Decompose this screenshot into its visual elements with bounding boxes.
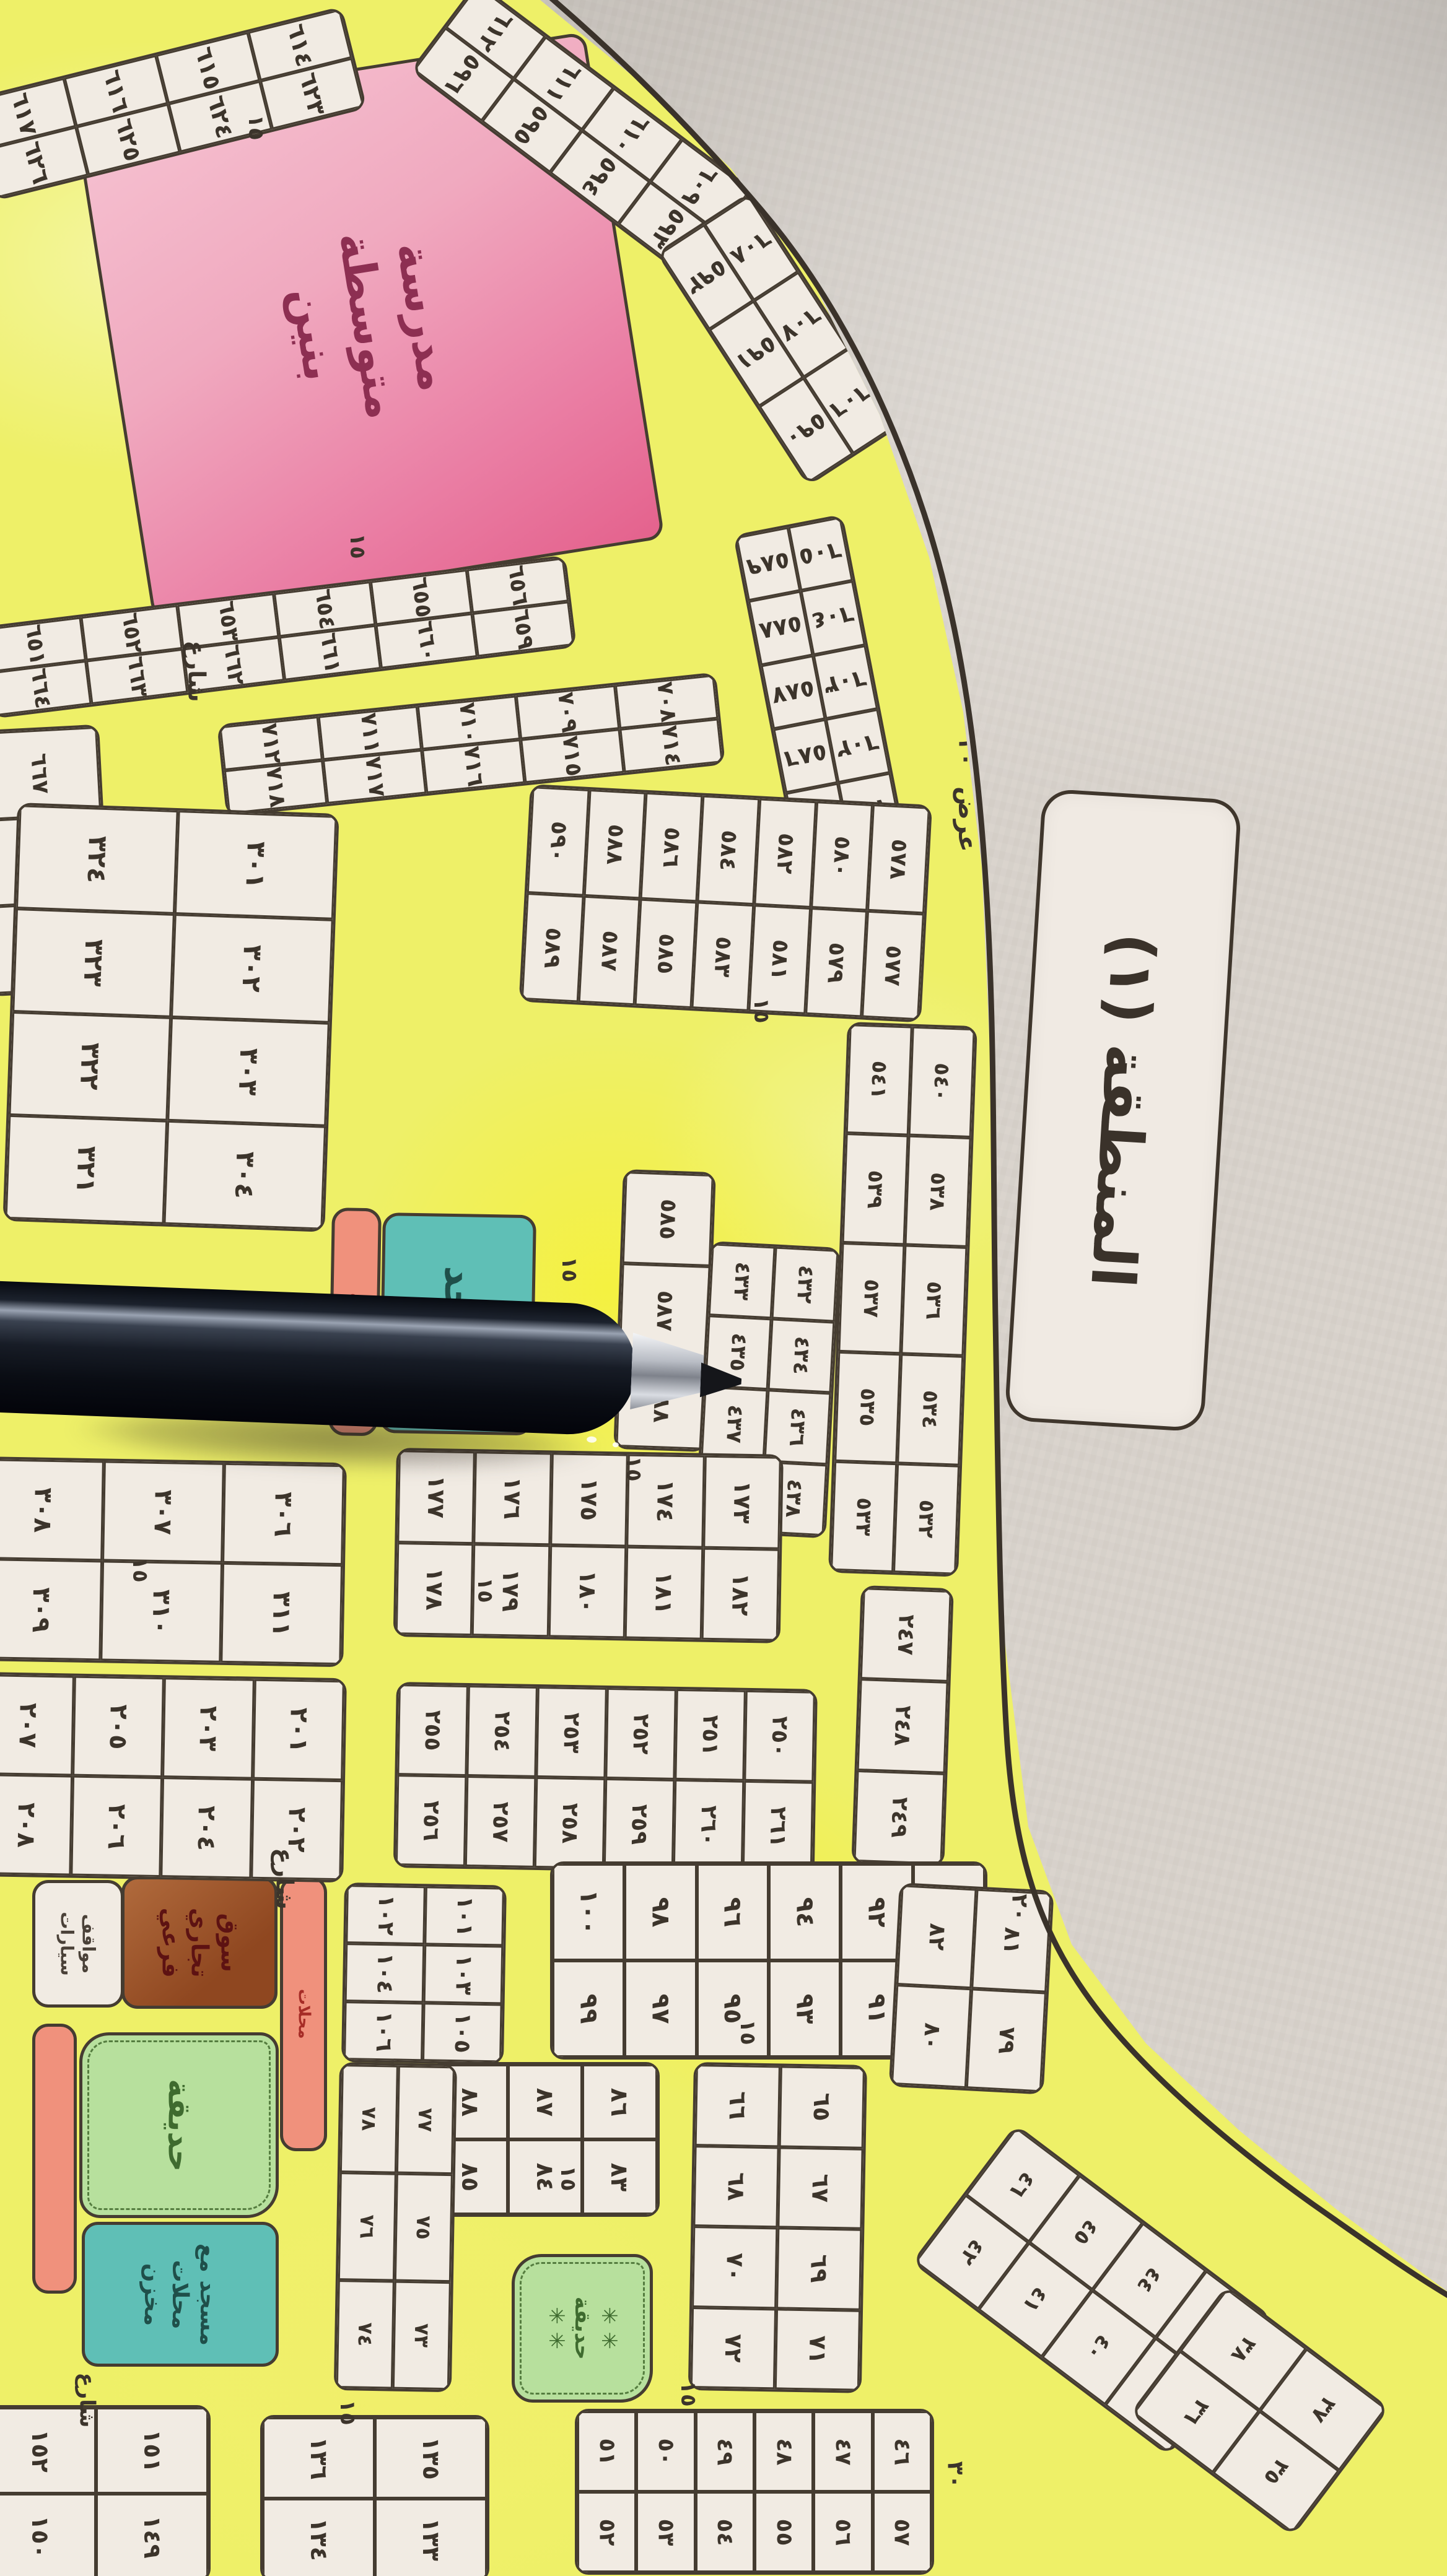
plot-cell: ٧١٧ (323, 750, 426, 804)
plot-cell: ٧٦ (338, 2172, 396, 2281)
street-label: ١٥ (735, 2019, 760, 2045)
plot-cell: ٥٨٩ (522, 893, 584, 1003)
plot-cell: ٧١ (775, 2308, 860, 2391)
plot-cell: ٤٦ (873, 2411, 932, 2492)
shops-strip-3-area (32, 2024, 77, 2294)
market-area: سوقتجاريفرعي (121, 1876, 278, 2009)
street-label: شارع (183, 640, 211, 702)
plot-cell: ١٤٩ (96, 2494, 208, 2576)
plot-cell: ٦٧ (777, 2147, 863, 2229)
street-label: ١٥ (556, 2165, 580, 2191)
plot-cell: ٥٨٧ (578, 896, 640, 1006)
plot-cell: ٢٠٤ (160, 1777, 252, 1879)
parking-area: مواقفسيارات (32, 1880, 124, 2008)
plot-cell: ٥٨٥ (635, 899, 697, 1009)
plot-block-block-65-72: ٦٦٦٥٦٨٦٧٧٠٦٩٧٢٧١ (688, 2062, 867, 2393)
plot-cell: ٢٥٥ (397, 1684, 468, 1776)
plot-block-col-100s: ١٠٢١٠١١٠٤١٠٣١٠٦١٠٥ (341, 1882, 507, 2065)
street-label: متر (912, 353, 940, 394)
plot-cell: ٥٥ (754, 2492, 813, 2572)
parking-label: مواقفسيارات (56, 1912, 100, 1975)
street-label: ١٥ (345, 533, 370, 559)
plot-cell: ٥٨٦ (640, 793, 703, 902)
plot-cell: ١٨٢ (701, 1547, 779, 1641)
plot-block-block-150s: ١٥٢١٥١١٥٠١٤٩ (0, 2405, 211, 2576)
street-label: ١٥ (676, 2381, 701, 2407)
street-label: ٢٠ (953, 739, 979, 767)
plot-cell: ١٨١ (625, 1546, 703, 1640)
market-label: سوقتجاريفرعي (155, 1908, 244, 1978)
plot-cell: ٢٥١ (675, 1689, 746, 1781)
plot-cell: ١٥١ (96, 2408, 208, 2494)
plot-cell: ٣٢٤ (16, 805, 178, 914)
shops-strip-2-label: محلات (294, 1989, 314, 2039)
plot-cell: ٢٥٤ (466, 1686, 538, 1777)
plot-cell: ٥٤ (696, 2492, 754, 2572)
plot-cell: ٢٥٣ (536, 1687, 607, 1778)
pen-nib (700, 1362, 742, 1398)
street-label: ١٥ (473, 1577, 497, 1603)
plot-cell: ٣١٠ (100, 1560, 222, 1662)
street-label: ١٥ (749, 998, 774, 1024)
plot-cell: ٥٨٨ (584, 790, 646, 899)
plot-block-block-40s-50s: ٥١٥٠٤٩٤٨٤٧٤٦٥٢٥٣٥٤٥٥٥٦٥٧ (575, 2409, 934, 2575)
mosque-2-label: مسجد معمحلاتمخزن (138, 2243, 222, 2345)
plot-cell: ٦٩ (776, 2227, 862, 2310)
street-label: ٣٠ (942, 2461, 968, 2489)
mosque-2-area: مسجد معمحلاتمخزن (82, 2222, 279, 2367)
zone-title: المنطقة (١) (1078, 931, 1169, 1290)
plot-cell: ٥٤٠ (909, 1027, 975, 1138)
plot-block-col-240s: ٢٤٧٢٤٨٢٤٩ (851, 1585, 954, 1867)
plot-cell: ٧٨ (340, 2065, 398, 2173)
plot-cell: ٣٢٣ (12, 908, 175, 1017)
plot-cell: ٥٧ (873, 2492, 932, 2572)
plot-cell: ١٥٠ (0, 2494, 96, 2576)
plot-cell: ٢٤٧ (860, 1588, 951, 1682)
plot-cell: ١٣٤ (263, 2499, 375, 2576)
plot-cell: ٦٥ (779, 2066, 865, 2148)
plot-cell: ٥٨٤ (697, 796, 760, 905)
plot-cell: ٢٠٦ (71, 1776, 162, 1878)
plot-cell: ٥٨٢ (754, 798, 816, 908)
plot-block-block-300s: ٣٢٤٣٠١٣٢٣٣٠٢٣٢٢٣٠٣٣٢١٣٠٤ (2, 803, 339, 1232)
pen-body (0, 1280, 639, 1437)
plot-block-arc-b: ٦٠٨٦٠٧٦٠٦٥٩٢٥٩١٥٩٠ (656, 192, 901, 486)
plot-cell: ٧٥ (395, 2173, 453, 2282)
plot-cell: ٦٦٤ (0, 661, 92, 716)
street-label: ٢٠ (1020, 1764, 1046, 1791)
street-label: ٢٠ (1007, 1894, 1032, 1921)
plot-cell: ٢٠١ (253, 1679, 344, 1781)
school-label: مدرسةمتوسطةبنين (272, 219, 466, 431)
plot-cell: ٦٦ (695, 2065, 780, 2147)
plot-cell: ٢٦١ (743, 1781, 814, 1873)
plot-cell: ٥٣٤ (897, 1354, 963, 1466)
plot-cell: ٣٠١ (175, 811, 337, 920)
plot-cell: ٢٥٩ (604, 1778, 675, 1870)
plot-cell: ٢٠٨ (0, 1774, 72, 1876)
plot-cell: ٥٣٥ (834, 1352, 901, 1463)
plot-cell: ١٣٦ (263, 2417, 375, 2499)
plot-block-band2-mid: ٢٥٥٢٥٤٢٥٣٢٥٢٢٥١٢٥٠٢٥٦٢٥٧٢٥٨٢٥٩٢٦٠٢٦١ (393, 1682, 818, 1875)
plot-cell: ٥٩٠ (527, 786, 590, 896)
plot-cell: ٢٠٣ (162, 1677, 254, 1779)
plot-block-block-570s: ٥٩٠٥٨٨٥٨٦٥٨٤٥٨٢٥٨٠٥٧٨٥٨٩٥٨٧٥٨٥٥٨٣٥٨١٥٧٩٥… (519, 784, 933, 1023)
plot-cell: ٨٦ (582, 2065, 657, 2139)
plot-cell: ١٠٠ (553, 1864, 624, 1960)
plot-block-block-530s: ٥٤١٥٤٠٥٣٩٥٣٨٥٣٧٥٣٦٥٣٥٥٣٤٥٣٣٥٣٢ (828, 1022, 977, 1577)
plot-cell: ٢٥٧ (465, 1776, 536, 1868)
plot-cell: ٧٢ (691, 2307, 776, 2390)
plot-cell: ١٠٢ (346, 1885, 426, 1944)
plot-cell: ٧١٦ (422, 739, 525, 793)
plot-cell: ٢٥٢ (605, 1688, 676, 1780)
plot-cell: ٥٠ (636, 2411, 695, 2492)
plot-block-col-73-78: ٧٨٧٧٧٦٧٥٧٤٧٣ (334, 2062, 457, 2392)
plot-cell: ٥٣ (636, 2492, 695, 2572)
street-label: ١٥ (335, 2400, 360, 2426)
park-2-area: ✳ ✳حديقة✳ ✳ (512, 2254, 653, 2403)
plot-cell: ١٠٦ (344, 2001, 424, 2061)
plot-cell: ٥٧٩ (805, 908, 868, 1017)
plot-cell: ٤٨ (754, 2411, 813, 2492)
plot-cell: ٣٠٢ (171, 914, 333, 1023)
street-label: ١٥ (243, 115, 268, 141)
plot-cell: ٥٣٣ (831, 1461, 897, 1572)
plot-cell: ٢٠٥ (72, 1676, 164, 1778)
street-label: شارع (271, 1848, 299, 1909)
plot-cell: ٨٧ (508, 2065, 583, 2139)
plot-block-block-80s: ٨٨٨٧٨٦٨٥٨٤٨٣ (431, 2062, 660, 2217)
plot-cell: ١٨٠ (549, 1545, 627, 1638)
plot-cell: ٥٣٩ (842, 1133, 909, 1245)
plot-cell: ٥٣٨ (904, 1136, 971, 1247)
plot-cell: ٥٧٨ (867, 804, 930, 914)
plot-cell: ٨٠ (891, 1985, 971, 2088)
plot-cell: ٢٥٦ (396, 1775, 467, 1866)
plot-cell: ٤٧ (813, 2411, 872, 2492)
plot-cell: ١٠٣ (424, 1944, 504, 2004)
plot-cell: ٥٨٣ (692, 902, 754, 1011)
street-label: عرض (1032, 1666, 1060, 1731)
street-label: عرض (953, 786, 981, 852)
street-label: ١٥ (557, 1256, 582, 1282)
plot-cell: ٩٣ (769, 1960, 841, 2057)
plot-cell: ١٠٥ (422, 2003, 502, 2062)
plot-cell: ٩٨ (624, 1864, 696, 1960)
plot-cell: ٥٤١ (846, 1024, 912, 1136)
plot-cell: ١٧٨ (396, 1543, 474, 1636)
plot-cell: ٨٣ (582, 2139, 657, 2214)
plot-cell: ٦٨ (693, 2146, 779, 2228)
plot-cell: ٣١١ (221, 1563, 343, 1664)
plot-cell: ٥٨٥ (623, 1172, 714, 1266)
plot-cell: ٥٨٠ (811, 801, 873, 911)
plot-cell: ٢٤٩ (854, 1770, 945, 1865)
plot-cell: ٧١٤ (619, 718, 723, 772)
plot-cell: ٥٦ (813, 2492, 872, 2572)
plot-cell: ١٣٣ (375, 2499, 487, 2576)
plot-cell: ٩٤ (769, 1864, 841, 1960)
plot-cell: ٣٢٢ (9, 1012, 171, 1121)
plot-cell: ٧١٥ (520, 729, 624, 783)
plot-cell: ١٠١ (424, 1886, 504, 1946)
plot-cell: ٥٣٧ (838, 1243, 904, 1354)
plot-cell: ٧٣ (393, 2281, 451, 2390)
park-2-label: ✳ ✳حديقة✳ ✳ (543, 2297, 622, 2360)
plot-cell: ٧٤ (336, 2280, 395, 2389)
plot-cell: ٥٣٦ (901, 1245, 967, 1356)
plot-cell: ٨٢ (896, 1885, 976, 1988)
shops-strip-2-area: محلات (280, 1876, 327, 2151)
plot-cell: ٢٤٨ (857, 1679, 948, 1773)
plot-cell: ٣٠٣ (167, 1017, 330, 1126)
park-1-area: حديقة (79, 2032, 279, 2218)
plot-cell: ٥٧٧ (862, 911, 924, 1020)
plot-block-block-130s: ١٣٦١٣٥١٣٤١٣٣ (260, 2415, 489, 2576)
plot-cell: ٧١٨ (224, 760, 328, 814)
plot-cell: ٣٠٩ (0, 1559, 102, 1660)
park-1-label: حديقة (160, 2079, 199, 2172)
plot-cell: ١٠٤ (345, 1943, 425, 2003)
plot-cell: ٥٢ (577, 2492, 636, 2572)
plot-cell: ٢٠٧ (0, 1674, 74, 1776)
plot-cell: ٢٥٠ (744, 1690, 815, 1782)
plot-cell: ٣٠٤ (164, 1121, 326, 1230)
plot-cell: ٧٧ (396, 2066, 455, 2175)
plot-cell: ٤٩ (696, 2411, 754, 2492)
plot-cell: ٢٥٨ (535, 1777, 606, 1869)
street-label: شارع (75, 2372, 100, 2427)
pen (0, 1263, 784, 1516)
street-label: ١٥ (128, 1557, 152, 1583)
plot-cell: ٥١ (577, 2411, 636, 2492)
plot-cell: ٩٦ (697, 1864, 769, 1960)
plot-cell: ٣٢١ (6, 1115, 168, 1224)
plot-cell: ٥٣٢ (893, 1463, 960, 1575)
plot-cell: ٢٦٠ (673, 1780, 745, 1871)
plot-cell: ١٣٥ (375, 2417, 487, 2499)
plot-cell: ٧٩ (966, 1988, 1046, 2092)
pen-metal-tip (630, 1333, 705, 1412)
zone-title-box: المنطقة (١) (1004, 788, 1242, 1432)
plot-cell: ٩٧ (624, 1960, 696, 2057)
plot-cell: ٧٠ (692, 2226, 777, 2308)
plot-cell: ٩٩ (553, 1960, 624, 2057)
